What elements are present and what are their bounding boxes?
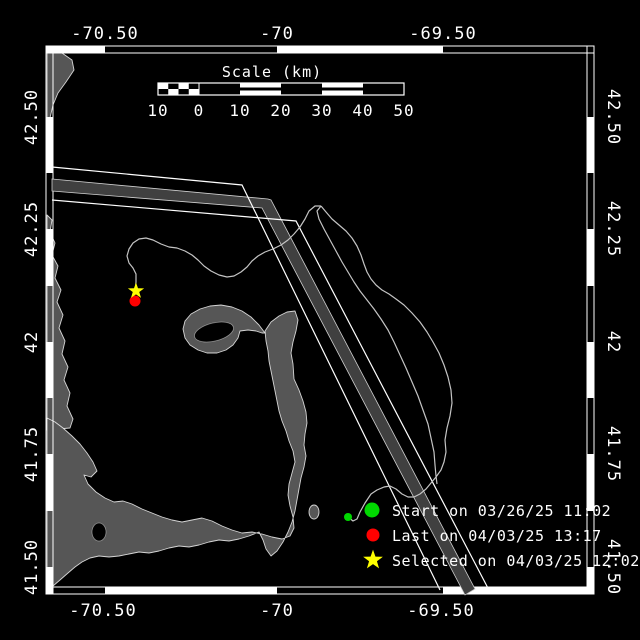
land-north-shore (47, 50, 74, 124)
scale-tick-label: 30 (311, 101, 332, 120)
lon-label-top: -70.50 (71, 24, 138, 44)
lat-label-right: 42.25 (603, 201, 623, 257)
lon-label-top: -70 (260, 24, 294, 44)
scale-bar-title: Scale (km) (222, 63, 322, 81)
map-figure: Scale (km) 10 0 10 20 30 40 50 Start on … (0, 0, 640, 640)
lat-label-left: 42.50 (22, 89, 42, 145)
landmasses (47, 50, 319, 590)
scale-tick-label: 40 (352, 101, 373, 120)
lat-label-left: 42 (22, 331, 42, 353)
land-island (309, 505, 319, 519)
scale-tick-label: 10 (147, 101, 168, 120)
scale-tick-label: 0 (194, 101, 205, 120)
legend-last-label: Last on 04/03/25 13:17 (392, 527, 602, 545)
start-marker-dot (344, 513, 352, 521)
land-mainland-cape (47, 311, 307, 590)
lat-label-right: 41.50 (603, 539, 623, 595)
scale-tick-label: 20 (270, 101, 291, 120)
lat-label-left: 41.75 (22, 426, 42, 482)
legend-yellow-star (363, 550, 383, 569)
legend-start-label: Start on 03/26/25 11:02 (392, 502, 611, 520)
scale-tick-label: 10 (229, 101, 250, 120)
lat-label-right: 41.75 (603, 426, 623, 482)
scale-tick-label: 50 (393, 101, 414, 120)
lon-label-bottom: -70.50 (69, 601, 136, 621)
legend-selected-label: Selected on 04/03/25 12:02 (392, 552, 640, 570)
legend-red-dot (367, 529, 380, 542)
scale-bar: Scale (km) 10 0 10 20 30 40 50 (147, 63, 414, 120)
legend-green-dot (365, 503, 380, 518)
lat-label-left: 41.50 (22, 539, 42, 595)
lon-label-bottom: -69.50 (407, 601, 474, 621)
track-segment-offshore-east (321, 206, 452, 521)
lon-label-top: -69.50 (409, 24, 476, 44)
plymouth-harbor (92, 523, 106, 541)
lon-label-bottom: -70 (260, 601, 294, 621)
last-marker-dot (130, 296, 141, 307)
legend: Start on 03/26/25 11:02 Last on 04/03/25… (363, 502, 640, 570)
lat-label-right: 42.50 (603, 89, 623, 145)
lat-label-right: 42 (603, 331, 623, 353)
map-canvas: Scale (km) 10 0 10 20 30 40 50 Start on … (0, 0, 640, 640)
lat-label-left: 42.25 (22, 201, 42, 257)
